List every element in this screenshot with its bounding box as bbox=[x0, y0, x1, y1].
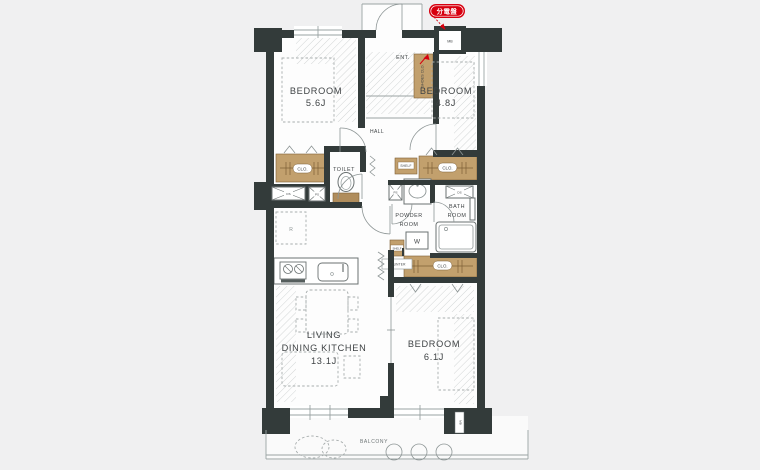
closet-2: CLO. bbox=[419, 156, 477, 180]
bath-room-line2: ROOM bbox=[448, 213, 467, 219]
bedroom1-size: 5.6J bbox=[306, 98, 326, 108]
ldk-size: 13.1J bbox=[311, 356, 337, 366]
closet-1: CLO. bbox=[276, 154, 328, 182]
ps2-label: PS bbox=[393, 191, 397, 195]
closet-1-label: CLO. bbox=[297, 167, 307, 172]
grill bbox=[281, 280, 305, 283]
duct-space-2: DS bbox=[446, 186, 473, 198]
bedroom2-window bbox=[475, 52, 487, 86]
balcony-label: BALCONY bbox=[360, 439, 388, 445]
closet-3-label: CLO. bbox=[437, 264, 447, 269]
toilet-label: TOILET bbox=[333, 167, 355, 173]
ds-ps-overlays: DS PS bbox=[272, 187, 325, 201]
closet-3: CLO. bbox=[404, 256, 477, 277]
bath-room-line1: BATH bbox=[449, 204, 465, 210]
hall-label: HALL bbox=[370, 129, 384, 135]
pipe-space-2: PS bbox=[389, 184, 402, 200]
ldk-name-line1: LIVING bbox=[307, 330, 341, 340]
balcony-meter-box: MB bbox=[455, 412, 464, 433]
hall-shelf: SHELF bbox=[395, 158, 417, 174]
balcony-meter-label: MB bbox=[459, 420, 463, 425]
svg-text:PS: PS bbox=[315, 193, 319, 197]
bedroom3-name: BEDROOM bbox=[408, 339, 460, 349]
ds2-label: DS bbox=[457, 191, 461, 195]
meter-box: MB bbox=[434, 26, 466, 54]
counter-tag: COUNTER bbox=[382, 259, 412, 269]
kitchen-counter bbox=[274, 258, 358, 284]
closet-2-label: CLO. bbox=[442, 166, 452, 171]
porch-floor bbox=[362, 4, 422, 30]
washing-machine-space: W bbox=[406, 232, 428, 249]
bedroom3-balcony-window bbox=[394, 405, 444, 420]
svg-text:DS: DS bbox=[286, 192, 290, 196]
bedroom2-size: 4.8J bbox=[436, 98, 456, 108]
badge-label: 分電盤 bbox=[437, 6, 458, 15]
shoes-closet-label: SHOES CLO. bbox=[421, 64, 425, 87]
refrigerator-label: R bbox=[289, 227, 293, 233]
floor-plan: CLO. CLO. CLO. SHOES CLO. SHELF SHELF bbox=[0, 0, 760, 470]
powder-room-line2: ROOM bbox=[400, 222, 419, 228]
bedroom1-window bbox=[294, 26, 342, 38]
powder-room-line1: POWDER bbox=[395, 213, 422, 219]
hall-shelf-label: SHELF bbox=[400, 164, 411, 168]
ldk-balcony-window bbox=[290, 405, 348, 420]
floor-plan-page: CLO. CLO. CLO. SHOES CLO. SHELF SHELF bbox=[0, 0, 760, 470]
bedroom2-name: BEDROOM bbox=[420, 86, 472, 96]
bedroom3-size: 6.1J bbox=[424, 352, 444, 362]
meter-box-label: MB bbox=[447, 40, 453, 44]
ldk-name-line2: DINING KITCHEN bbox=[282, 343, 367, 353]
entrance-label: ENT. bbox=[396, 55, 410, 61]
washer-label: W bbox=[414, 239, 421, 246]
bedroom1-name: BEDROOM bbox=[290, 86, 342, 96]
